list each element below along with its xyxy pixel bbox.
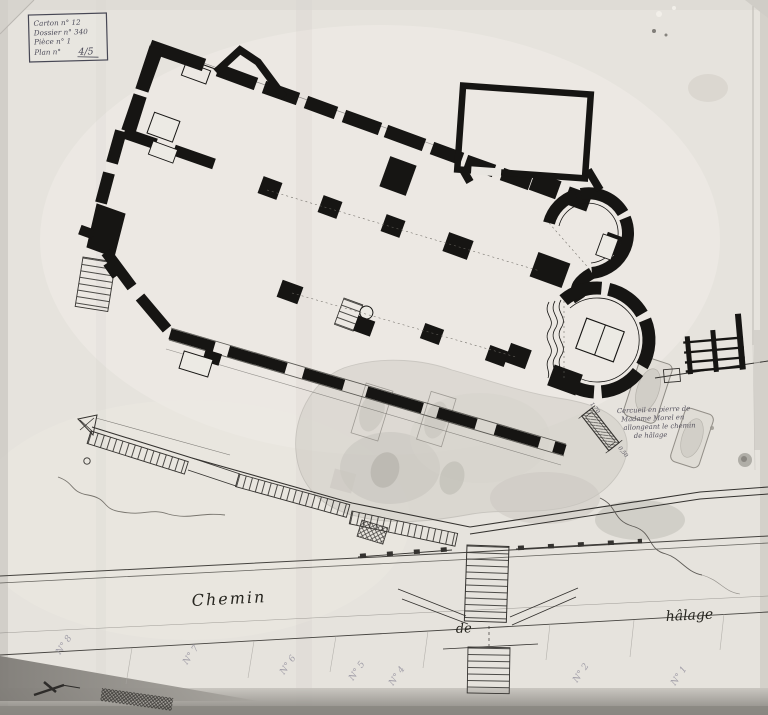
stamp-plan-label: Plan n° bbox=[33, 47, 61, 57]
lower-staircase bbox=[467, 647, 510, 694]
road-label-chemin: Chemin bbox=[191, 587, 267, 610]
stamp-line: Pièce n° 1 bbox=[33, 36, 71, 46]
plan-drawing: 1,70 0,50 Cercueil en pierre de Madame M… bbox=[0, 0, 768, 715]
stamp-plan-number: 4/5 bbox=[77, 46, 94, 57]
annotation-line: de hâlage bbox=[634, 431, 668, 440]
road-label-de: de bbox=[455, 621, 472, 637]
legend-stamp: Carton n° 12 Dossier n° 340 Pièce n° 1 P… bbox=[28, 13, 107, 62]
road-label-halage: hâlage bbox=[665, 607, 713, 625]
main-staircase bbox=[464, 545, 509, 622]
scanned-plan-sheet: 1,70 0,50 Cercueil en pierre de Madame M… bbox=[0, 0, 768, 715]
